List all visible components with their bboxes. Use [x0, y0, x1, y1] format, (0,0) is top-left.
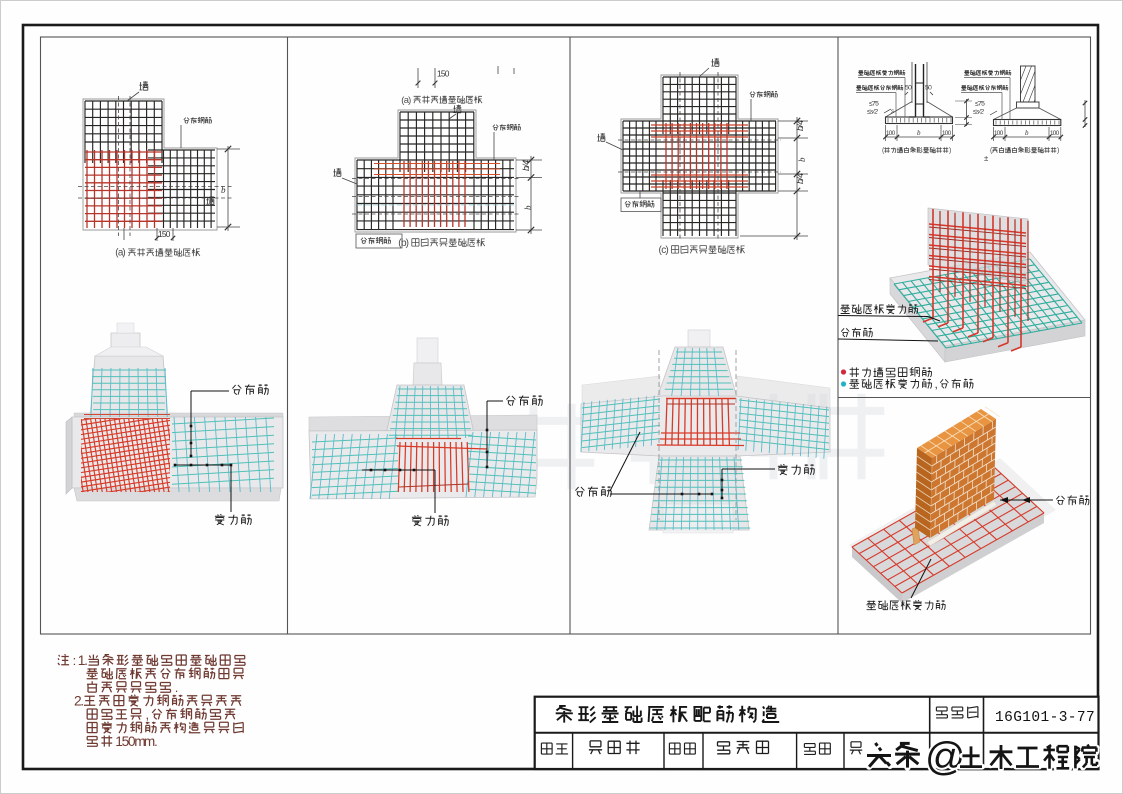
svg-text:0: 0: [948, 130, 952, 137]
svg-text:16G101-3-77: 16G101-3-77: [995, 710, 1095, 726]
svg-text:s: s: [891, 108, 894, 115]
svg-text:5: 5: [981, 100, 985, 107]
svg-text:): ): [665, 245, 668, 256]
svg-text:0: 0: [1056, 130, 1060, 137]
svg-text:): ): [408, 94, 411, 105]
svg-text:0: 0: [908, 84, 912, 91]
svg-text:±: ±: [984, 154, 989, 163]
svg-text:b: b: [221, 185, 226, 195]
svg-text:,: ,: [146, 707, 150, 722]
svg-text:0: 0: [166, 229, 171, 239]
svg-text:.: .: [84, 653, 88, 668]
svg-text:4: 4: [795, 120, 805, 125]
svg-text:b: b: [917, 129, 921, 137]
svg-text:.: .: [80, 693, 84, 708]
svg-text:): ): [122, 248, 125, 259]
svg-text:b: b: [523, 205, 533, 210]
svg-text:b: b: [1025, 129, 1029, 137]
svg-text:): ): [406, 238, 409, 249]
svg-text:): ): [949, 148, 951, 155]
svg-text:0: 0: [1000, 130, 1004, 137]
svg-text:,: ,: [935, 379, 938, 391]
svg-text:b: b: [797, 157, 807, 162]
svg-text:4: 4: [521, 160, 531, 165]
svg-text:2: 2: [873, 108, 878, 115]
svg-text:.: .: [154, 734, 158, 749]
svg-text:0: 0: [445, 69, 450, 79]
svg-text:5: 5: [875, 100, 879, 107]
svg-text:.: .: [175, 680, 179, 695]
svg-text:0: 0: [892, 130, 896, 137]
svg-text:4: 4: [795, 173, 805, 178]
svg-text::: :: [73, 653, 77, 668]
svg-text:0: 0: [928, 84, 932, 91]
svg-text:@: @: [925, 735, 966, 779]
svg-text:): ): [1057, 148, 1059, 155]
svg-text:2: 2: [979, 108, 984, 115]
